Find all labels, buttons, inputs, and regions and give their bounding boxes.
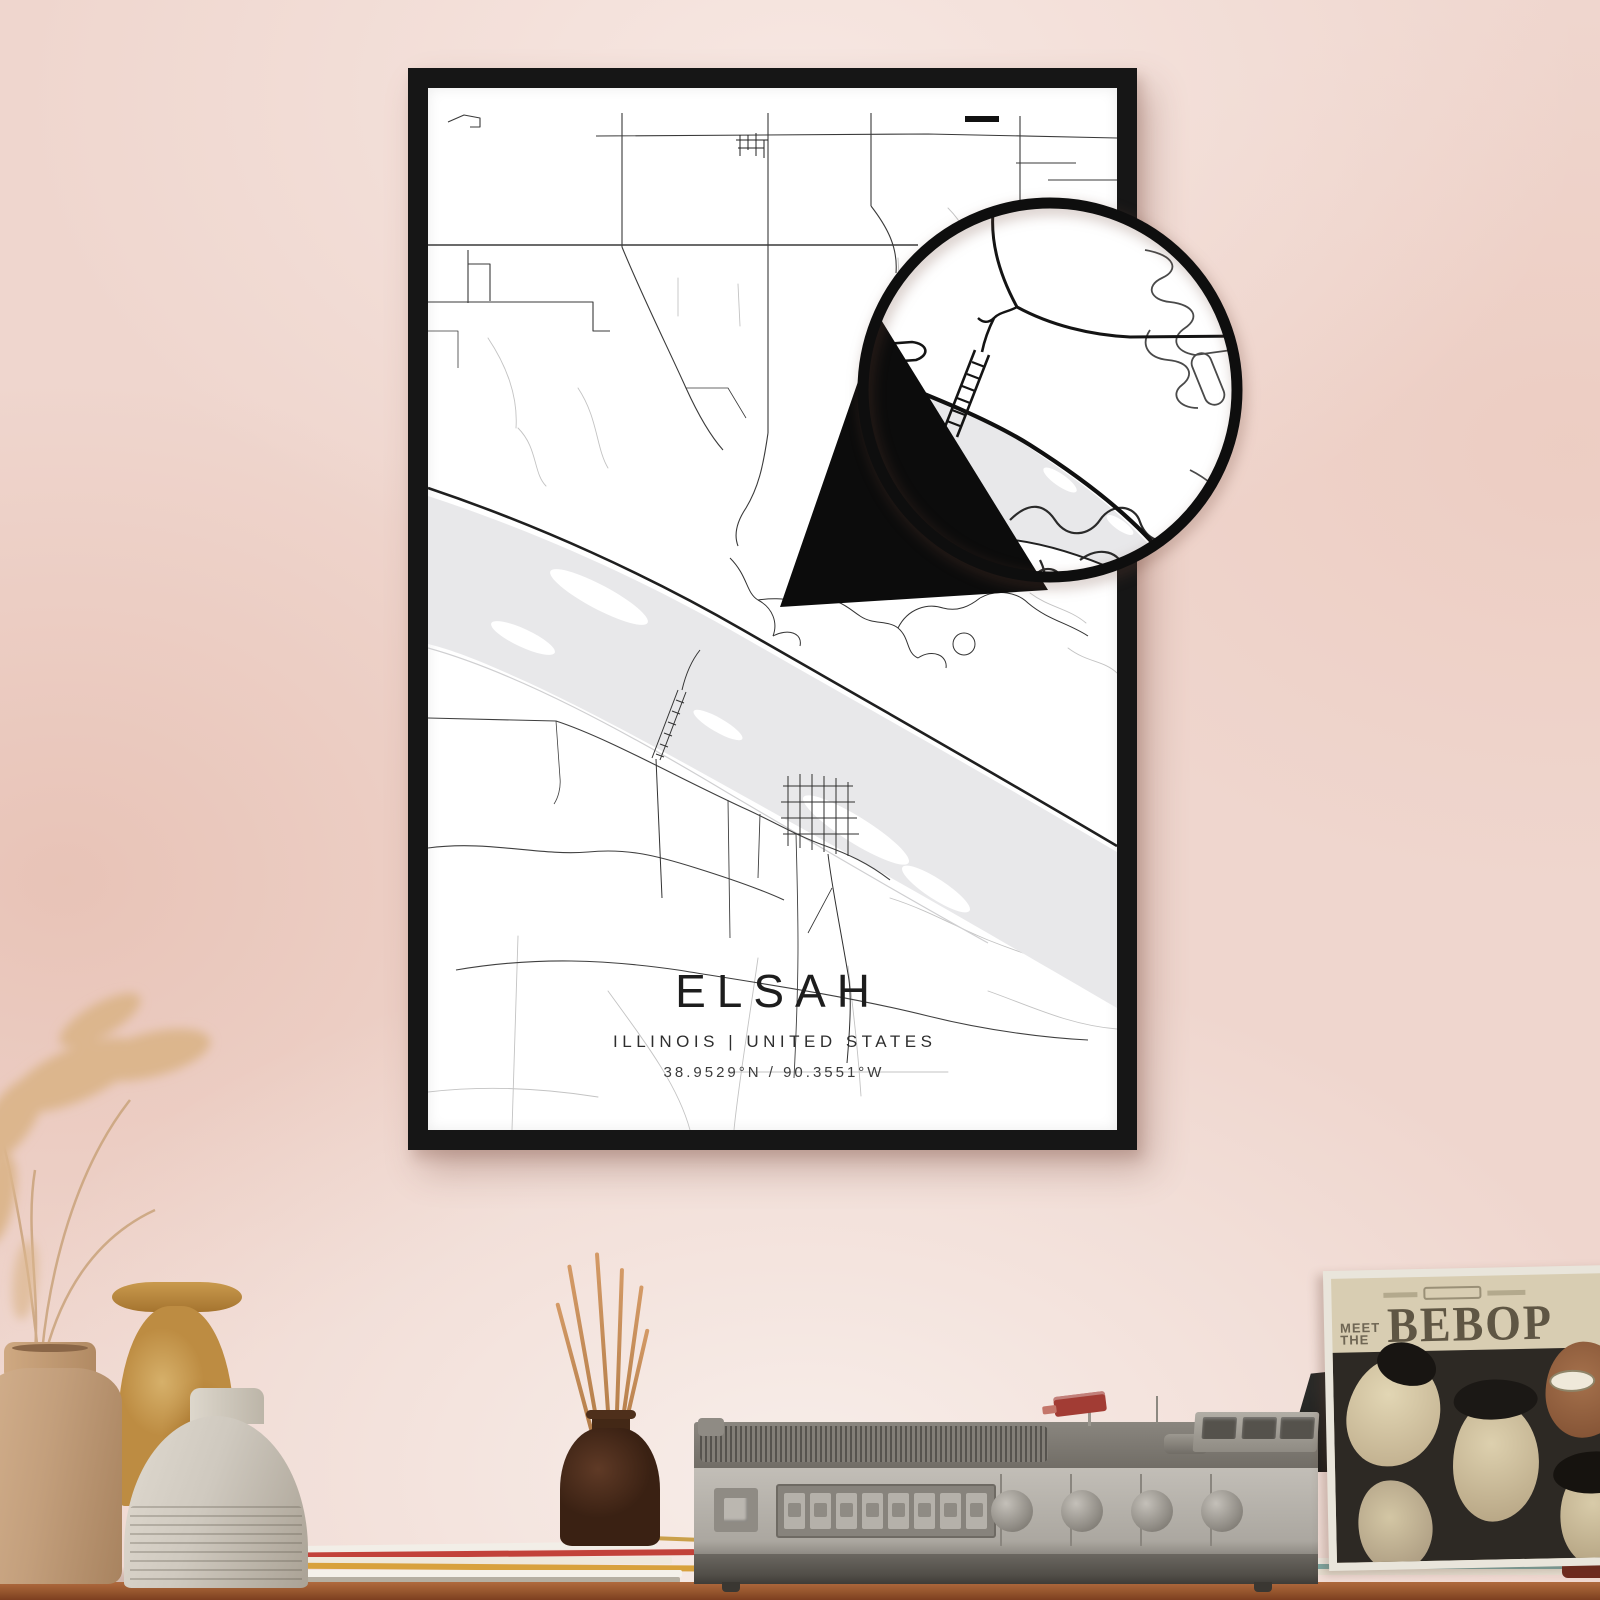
vinyl-album-cover: MEET THE BEBOP: [1323, 1265, 1600, 1571]
player-front-panel: [694, 1468, 1318, 1554]
power-button: [714, 1488, 758, 1532]
record-player: [694, 1422, 1318, 1584]
player-foot: [1254, 1582, 1272, 1592]
album-pretitle: MEET THE: [1340, 1322, 1381, 1347]
cassette-deck: [1193, 1412, 1320, 1452]
album-title: BEBOP: [1387, 1301, 1554, 1348]
player-knob: [1131, 1490, 1173, 1532]
turntable-platter: [700, 1426, 1048, 1462]
poster-coordinates: 38.9529°N / 90.3551°W: [428, 1064, 1117, 1081]
room-scene: ELSAH ILLINOIS | UNITED STATES 38.9529°N…: [0, 0, 1600, 1600]
album-pretitle-line2: THE: [1340, 1334, 1380, 1347]
album-cover-art: MEET THE BEBOP: [1331, 1273, 1600, 1563]
album-artwork: [1333, 1347, 1600, 1563]
player-button: [810, 1493, 831, 1529]
tonearm-cartridge: [1053, 1391, 1107, 1417]
poster-subtitle: ILLINOIS | UNITED STATES: [428, 1032, 1117, 1052]
player-knob: [991, 1490, 1033, 1532]
tan-vase: [0, 1368, 122, 1584]
player-button: [940, 1493, 961, 1529]
highway-dash: [965, 116, 999, 122]
player-button: [888, 1493, 909, 1529]
player-knob: [1061, 1490, 1103, 1532]
tonearm: [1046, 1392, 1136, 1426]
town-cluster-top: [736, 133, 768, 158]
antenna: [1156, 1396, 1158, 1424]
magazine-edge: [246, 1570, 682, 1577]
face-blob: [1349, 1472, 1442, 1562]
player-button: [836, 1493, 857, 1529]
incense-diffuser: [560, 1428, 660, 1546]
player-button: [862, 1493, 883, 1529]
player-knob: [1201, 1490, 1243, 1532]
poster-title: ELSAH: [428, 964, 1117, 1018]
player-foot: [722, 1582, 740, 1592]
player-top-deck: [694, 1422, 1318, 1468]
album-title-block: MEET THE BEBOP: [1340, 1302, 1554, 1346]
cassette-window: [1202, 1417, 1238, 1439]
player-button: [966, 1493, 987, 1529]
zoom-callout: [740, 180, 1270, 630]
hair-blob: [1553, 1451, 1600, 1495]
poster-title-block: ELSAH ILLINOIS | UNITED STATES 38.9529°N…: [428, 964, 1117, 1081]
preset-button-bank: [776, 1484, 996, 1538]
player-button: [784, 1493, 805, 1529]
hair-blob: [1453, 1379, 1538, 1421]
cassette-window: [1280, 1417, 1316, 1439]
player-button: [914, 1493, 935, 1529]
player-base: [694, 1554, 1318, 1584]
cassette-window: [1242, 1417, 1278, 1439]
